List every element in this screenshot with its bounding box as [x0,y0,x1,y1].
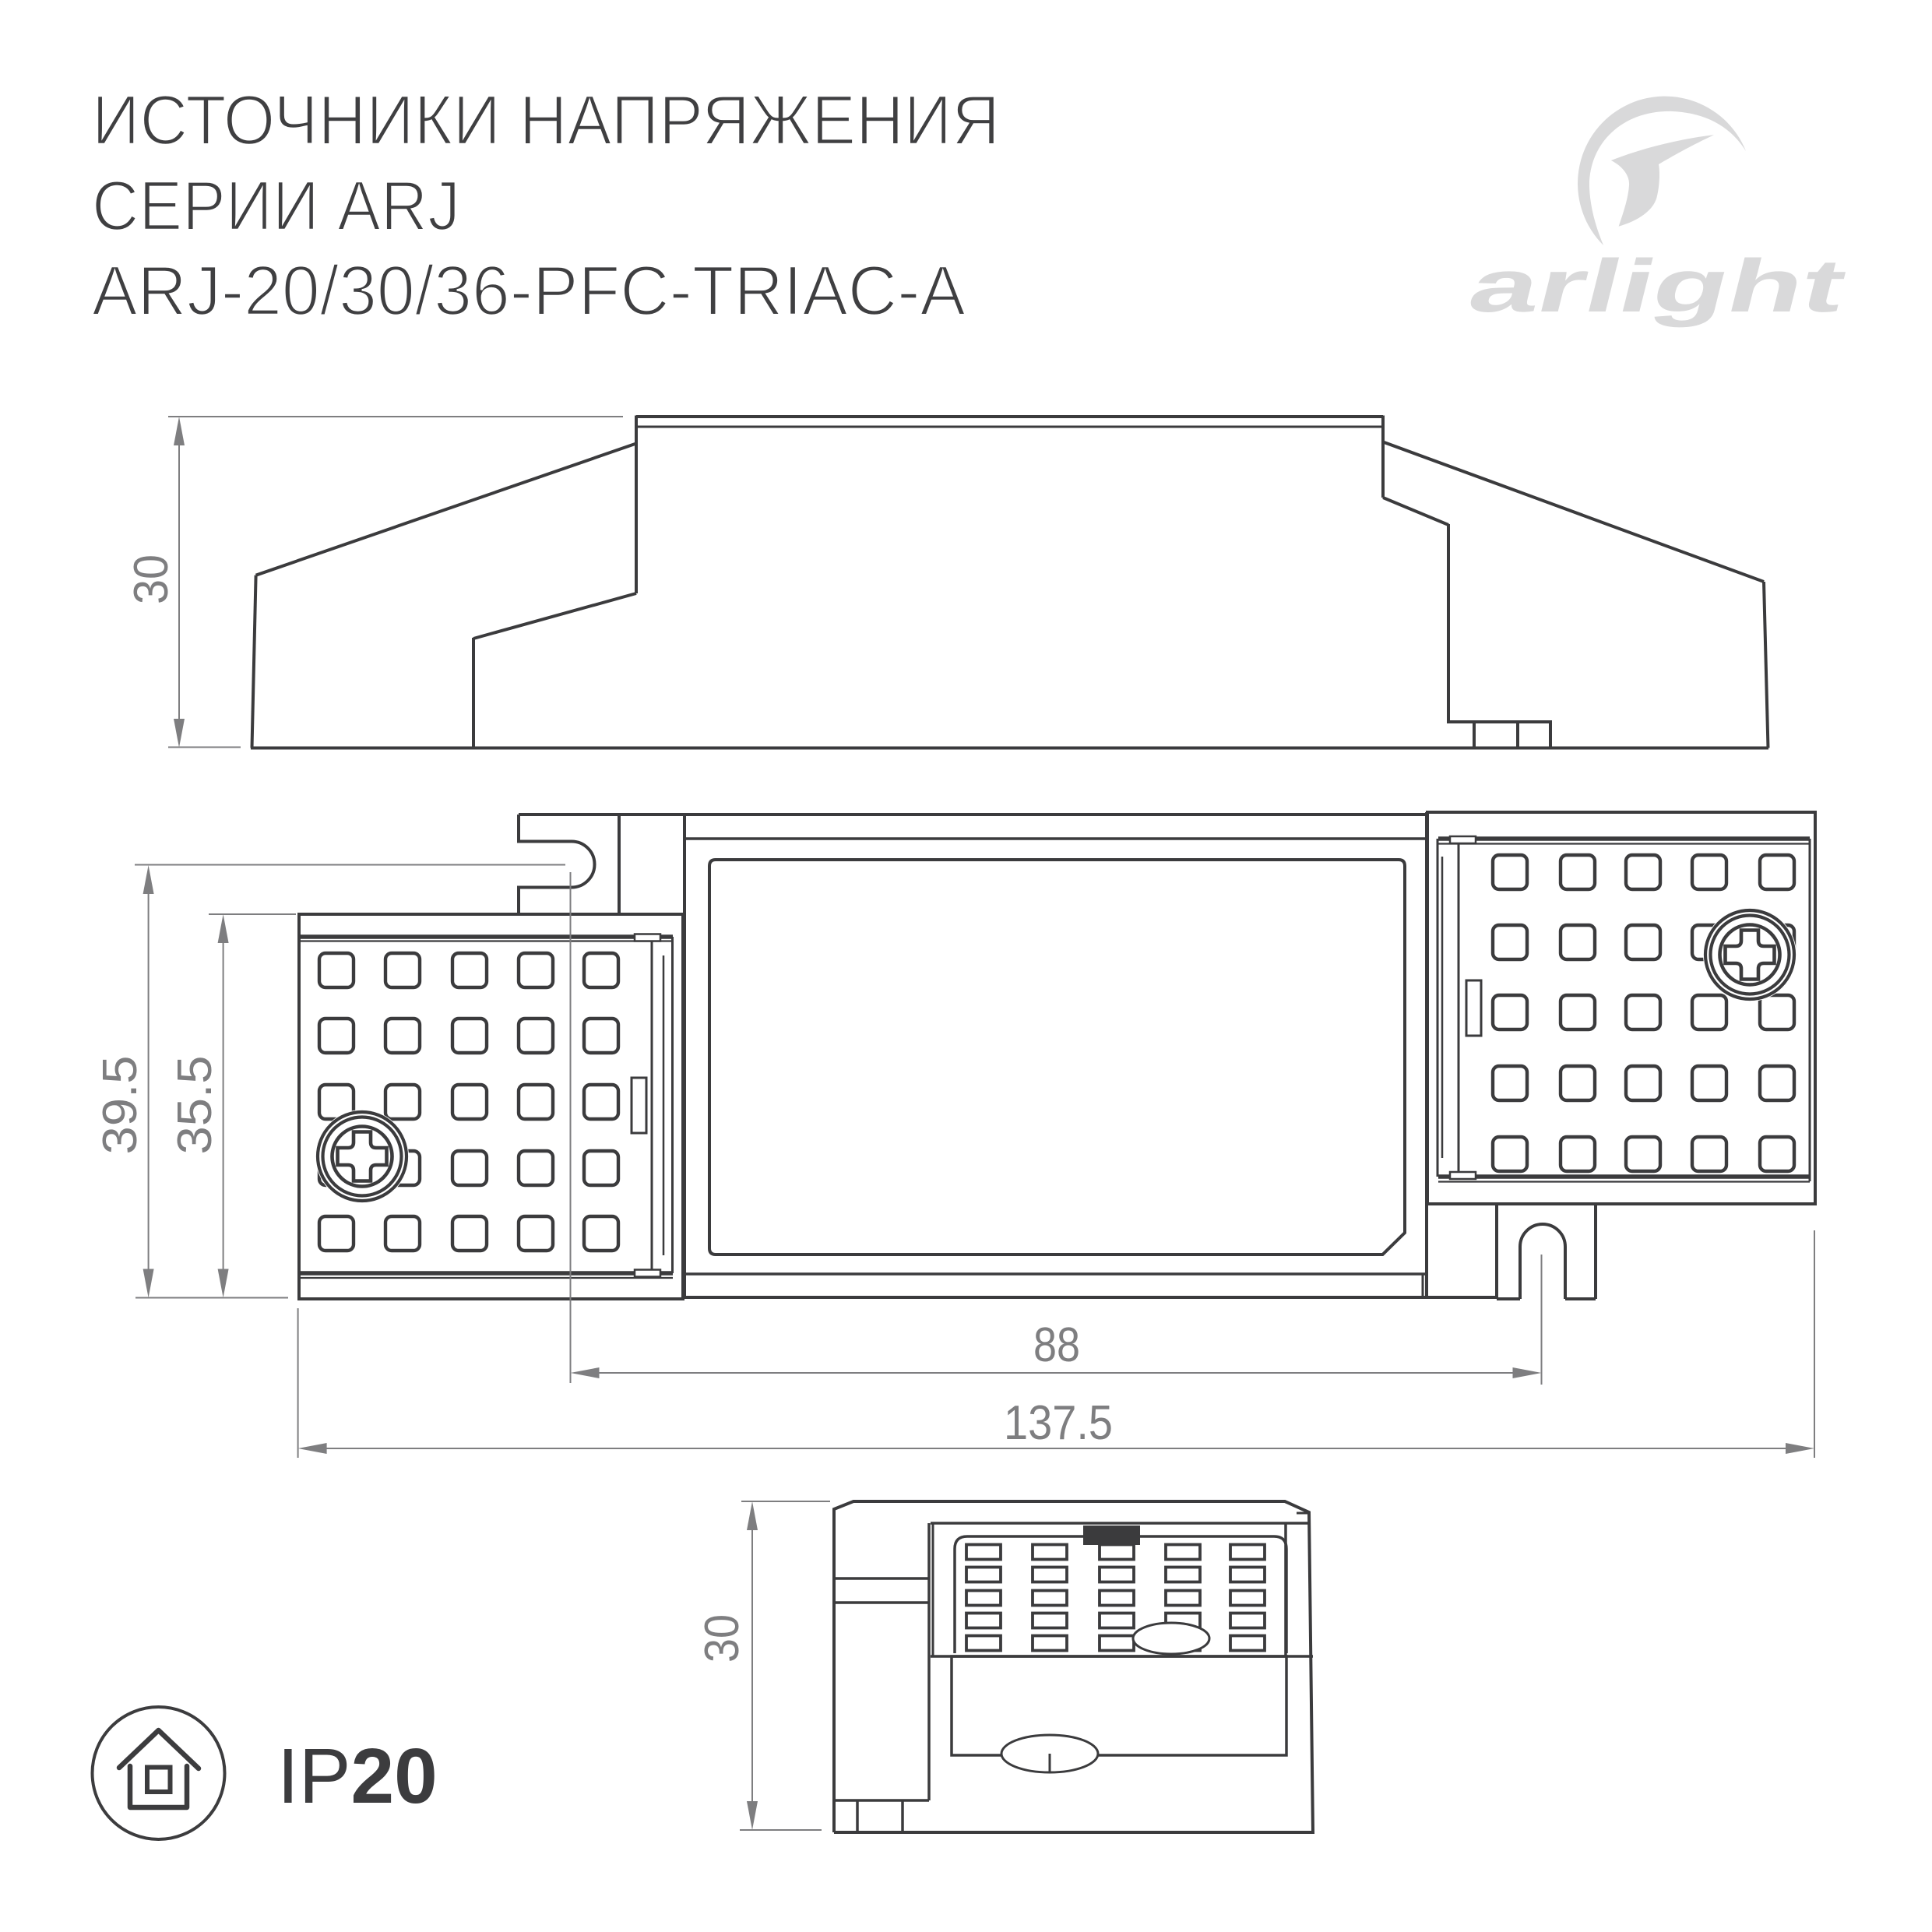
svg-text:СЕРИИ ARJ: СЕРИИ ARJ [92,167,460,245]
svg-text:30: 30 [125,554,178,604]
svg-text:39.5: 39.5 [93,1056,147,1155]
svg-text:ARJ-20/30/36-PFC-TRIAC-A: ARJ-20/30/36-PFC-TRIAC-A [92,252,966,330]
svg-text:ИСТОЧНИКИ НАПРЯЖЕНИЯ: ИСТОЧНИКИ НАПРЯЖЕНИЯ [92,82,1000,160]
svg-text:88: 88 [1033,1318,1080,1372]
svg-text:137.5: 137.5 [1004,1396,1113,1450]
svg-text:arlight: arlight [1461,244,1855,328]
svg-text:IP20: IP20 [277,1733,438,1820]
svg-text:30: 30 [695,1614,749,1663]
svg-text:35.5: 35.5 [168,1056,222,1155]
